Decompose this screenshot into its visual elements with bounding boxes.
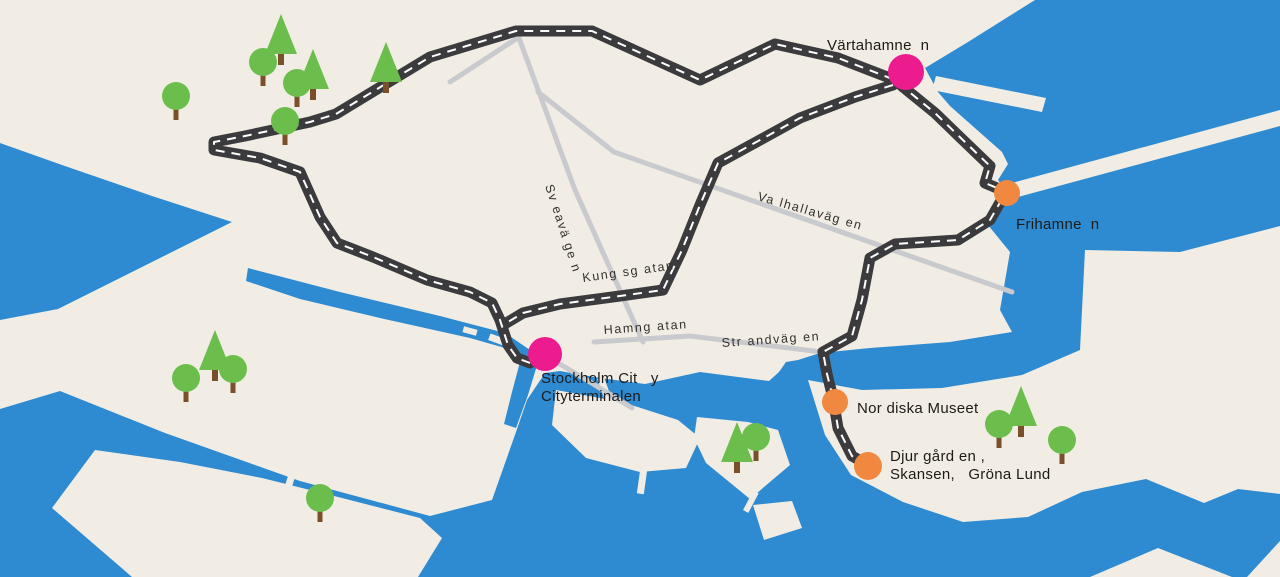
stop-label-vartahamnen: Värtahamne n [827, 37, 929, 54]
round-tree-icon [172, 364, 200, 402]
stop-stockholm-city-cityterminalen[interactable] [528, 337, 562, 371]
stockholm-route-map: Sv eavä ge nKung sg atanHamng atanVa lha… [0, 0, 1280, 577]
round-tree-icon [271, 107, 299, 145]
street-hamngatan [594, 336, 690, 342]
stop-frihamnen[interactable] [994, 180, 1020, 206]
route-road-west-loop [214, 31, 1004, 363]
water-left-lake [0, 143, 232, 320]
stop-nordiska-museet[interactable] [822, 389, 848, 415]
map-canvas: Sv eavä ge nKung sg atanHamng atanVa lha… [0, 0, 1280, 577]
street-label-valhallavagen: Va lhallaväg en [756, 189, 864, 232]
stop-vartahamnen[interactable] [888, 54, 924, 90]
round-tree-icon [162, 82, 190, 120]
water-channel [246, 268, 538, 428]
stop-label-nordiska-museet: Nor diska Museet [857, 400, 979, 417]
stop-djurgarden-skansen-grona-lund[interactable] [854, 452, 882, 480]
stop-label-frihamnen: Frihamne n [1016, 216, 1099, 233]
street-label-hamngatan: Hamng atan [603, 317, 688, 337]
